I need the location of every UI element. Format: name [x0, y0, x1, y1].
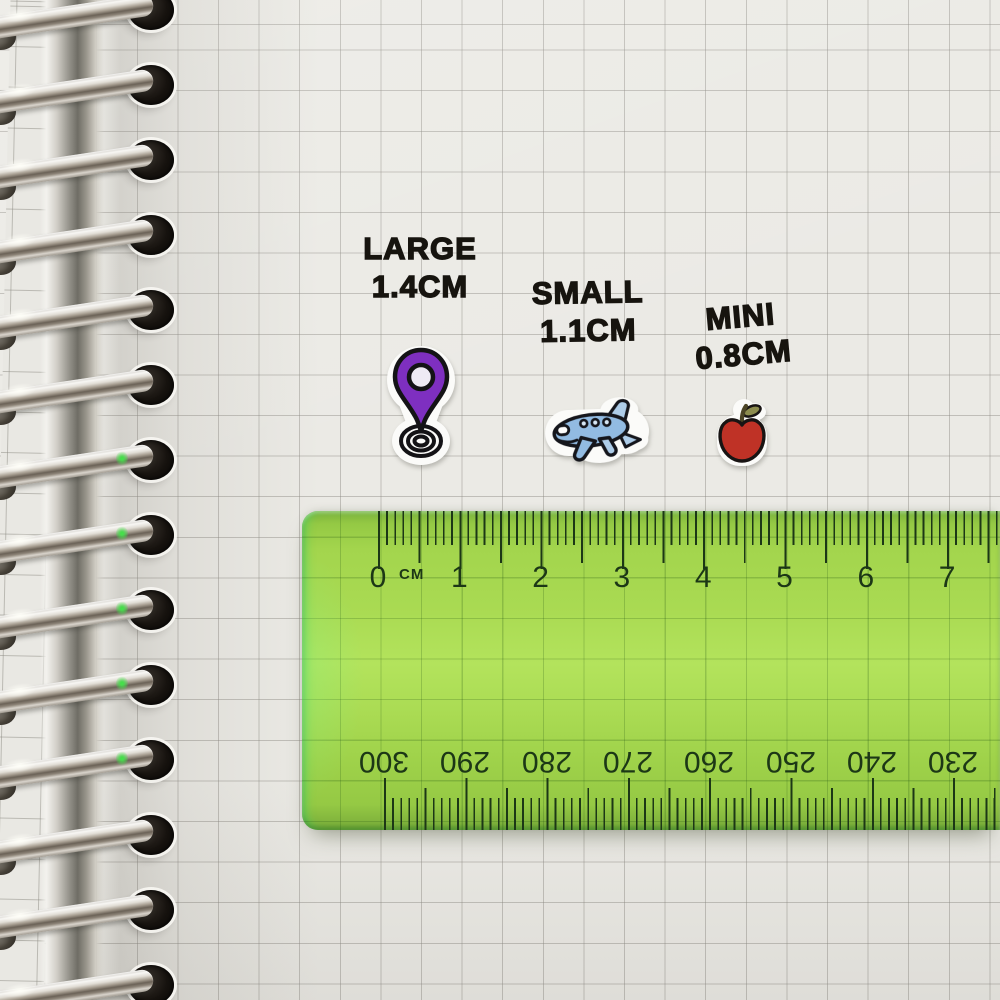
binding-ring [0, 655, 200, 719]
plane-windows [580, 419, 610, 427]
location-pin-icon [385, 342, 457, 468]
binding-ring [0, 55, 200, 119]
ruler-unit-label: CM [399, 566, 424, 583]
label-large-size: 1.4CM [340, 268, 500, 306]
binding-ring [0, 205, 200, 269]
ruler-mm-number: 270 [603, 744, 653, 778]
label-large-name: LARGE [340, 230, 500, 268]
ruler: 01234567 CM 300290280270260250240230 [302, 511, 1000, 830]
ruler-mm-number: 250 [765, 744, 815, 778]
ring-green-reflection [116, 601, 128, 616]
ruler-cm-number: 6 [857, 561, 874, 595]
ring-green-reflection [116, 751, 128, 766]
binding-ring [0, 880, 200, 944]
ruler-cm-number: 1 [451, 561, 468, 595]
ruler-mm-number: 290 [440, 744, 490, 778]
binding-ring [0, 955, 200, 1000]
apple-body [720, 420, 764, 461]
ring-green-reflection [116, 676, 128, 691]
binding-ring [0, 805, 200, 869]
binding-ring [0, 355, 200, 419]
plane-nose-window [556, 425, 569, 435]
label-small-size: 1.1CM [508, 311, 669, 352]
binding-ring [0, 130, 200, 194]
label-small-name: SMALL [507, 273, 668, 314]
ring-green-reflection [116, 451, 128, 466]
location-pin-sticker [385, 342, 457, 468]
binding-ring [0, 505, 200, 569]
binding-ring [0, 430, 200, 494]
ruler-top-cm-ticks [378, 511, 1000, 569]
apple-icon [714, 398, 770, 468]
ruler-mm-number: 300 [359, 744, 409, 778]
binding-ring [0, 730, 200, 794]
binding-ring [0, 580, 200, 644]
ruler-mm-number: 260 [684, 744, 734, 778]
label-mini: MINI 0.8CM [659, 291, 825, 381]
airplane-icon [542, 393, 654, 467]
label-small: SMALL 1.1CM [507, 273, 668, 352]
binding-ring [0, 280, 200, 344]
ruler-mm-number: 280 [522, 744, 572, 778]
airplane-sticker [542, 393, 654, 467]
notebook-photo: LARGE 1.4CM SMALL 1.1CM MINI 0.8CM 01234… [0, 0, 1000, 1000]
binding-ring [0, 0, 200, 44]
ruler-cm-number: 4 [695, 561, 712, 595]
ruler-cm-number: 2 [532, 561, 549, 595]
ruler-mm-number: 240 [847, 744, 897, 778]
ruler-bottom-cm-ticks [384, 778, 1000, 830]
ruler-cm-number: 3 [614, 561, 631, 595]
ruler-cm-number: 0 [370, 561, 387, 595]
apple-sticker [714, 398, 770, 468]
ruler-cm-number: 7 [939, 561, 956, 595]
pin-center-dot [409, 365, 433, 389]
spiral-binding [0, 0, 210, 1000]
ruler-cm-number: 5 [776, 561, 793, 595]
ruler-mm-number: 230 [928, 744, 978, 778]
ring-green-reflection [116, 526, 128, 541]
label-large: LARGE 1.4CM [340, 230, 500, 306]
